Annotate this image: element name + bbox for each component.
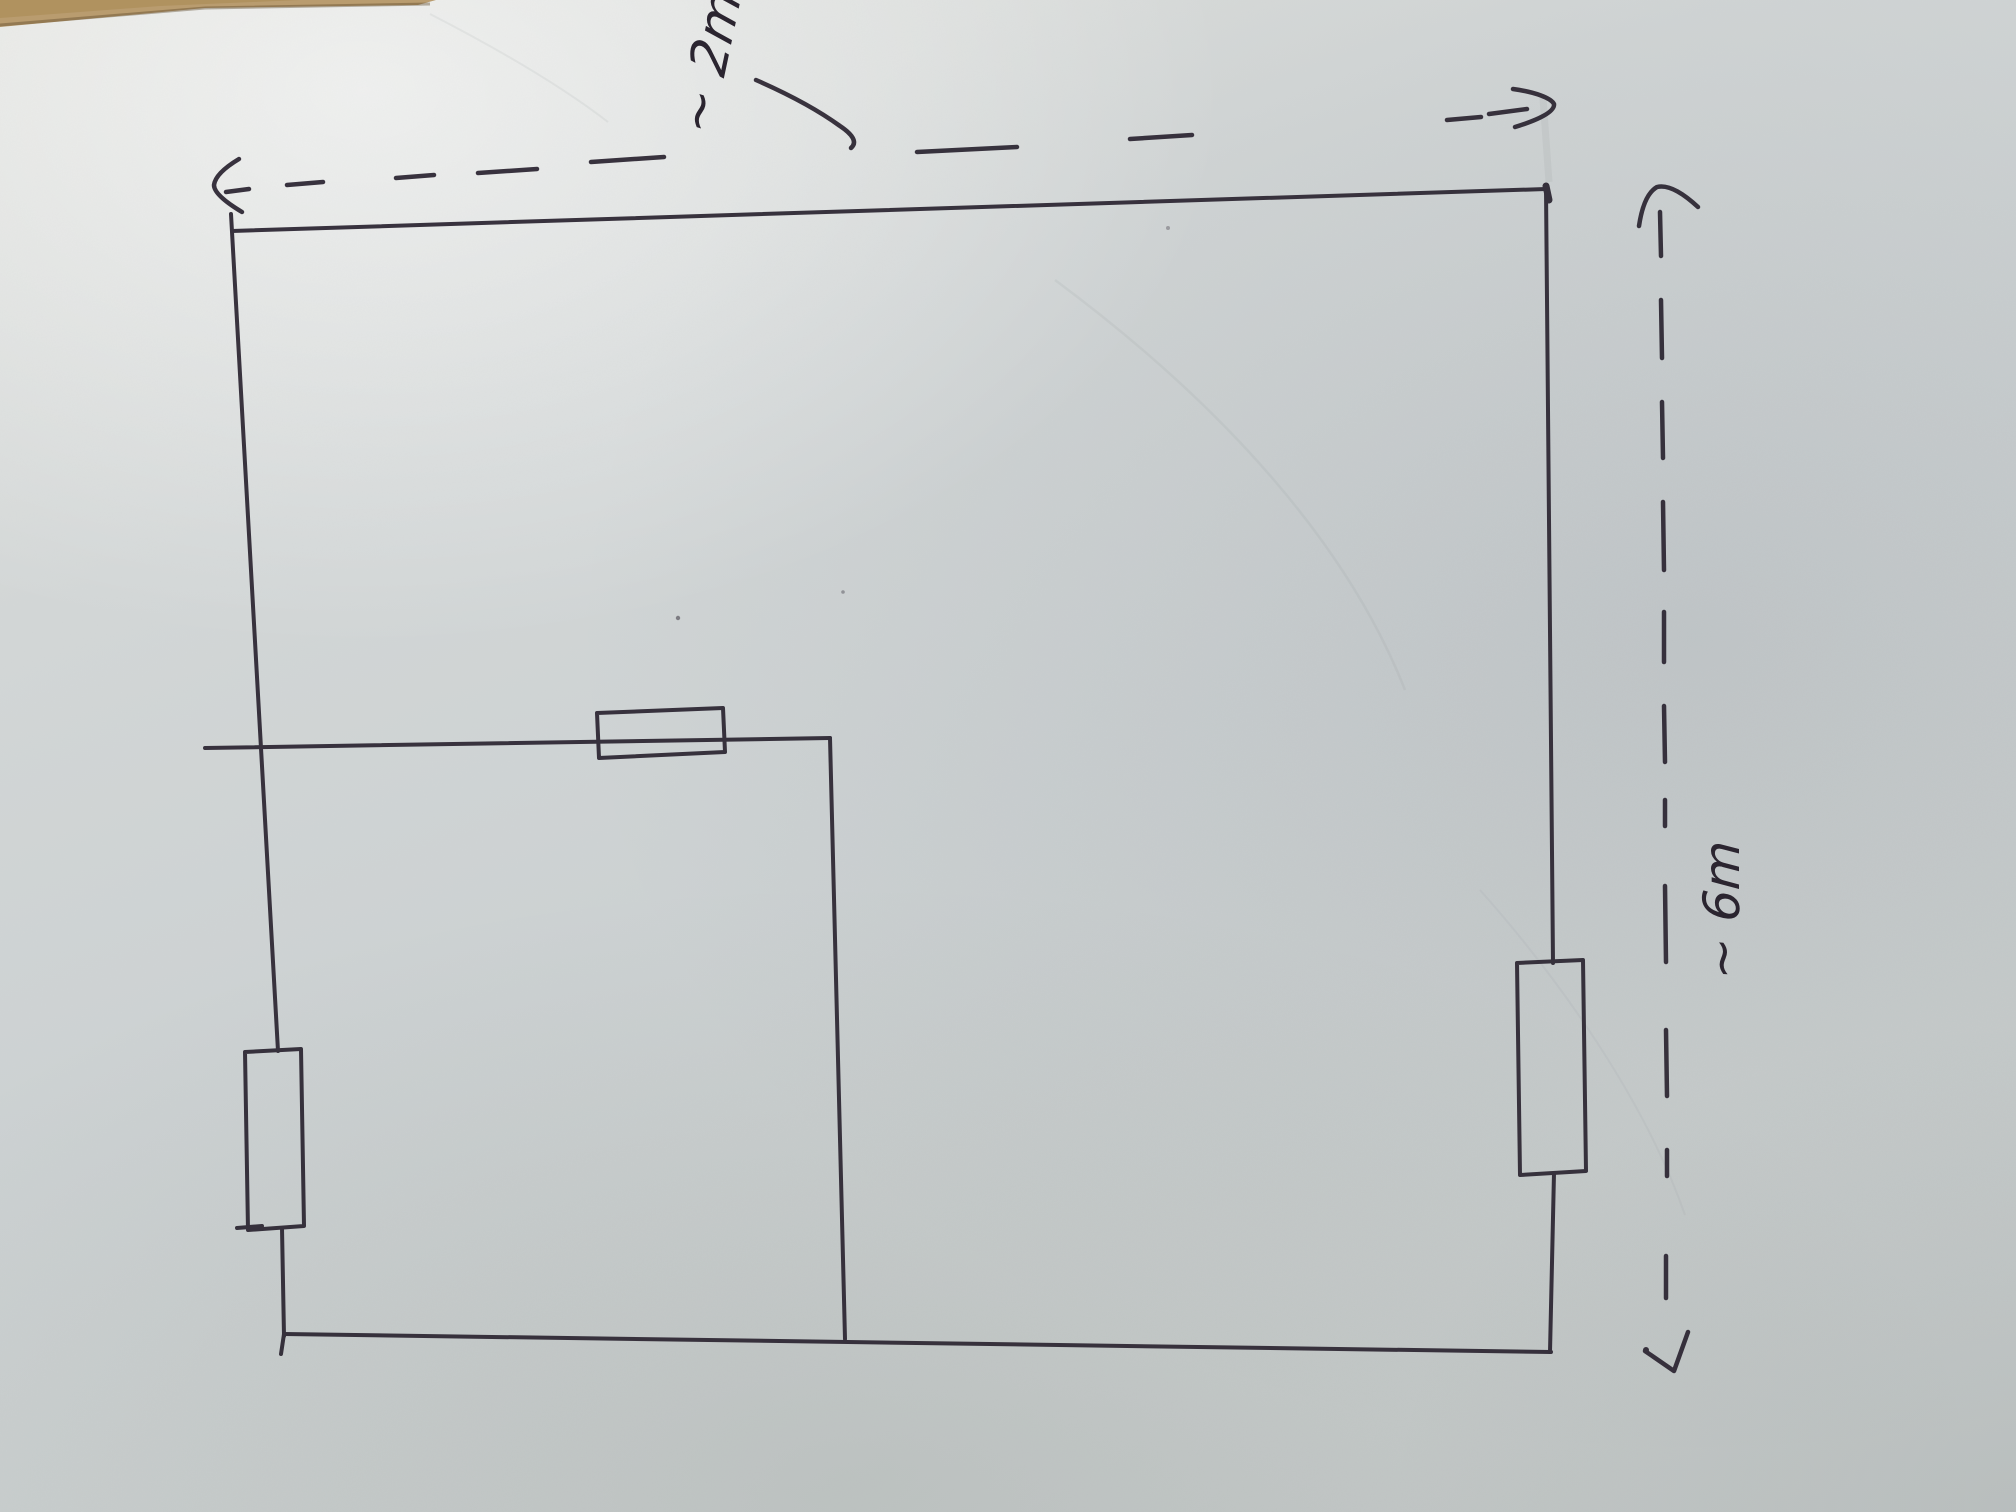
arrowhead-dot [1643,1347,1649,1353]
top-right-corner-blob [1546,186,1549,200]
left-box-overshoot [237,1226,262,1228]
dash [1661,300,1662,358]
photographed-paper-sketch: ~ 2m ~ 6m [0,0,2016,1512]
dash [1660,212,1661,256]
dash [287,182,323,185]
speck [1166,226,1170,230]
right-dimension-label: ~ 6m [1640,822,1804,997]
left-wall-lower [282,1228,284,1336]
dash [1662,402,1663,458]
dash [226,189,249,192]
sketch-drawing [0,0,2016,1512]
dash [396,175,434,178]
dash [1663,502,1664,570]
dash [1666,1030,1667,1096]
dash [1447,117,1481,120]
speck [841,590,845,594]
dash [1664,706,1665,762]
speck [676,616,680,620]
